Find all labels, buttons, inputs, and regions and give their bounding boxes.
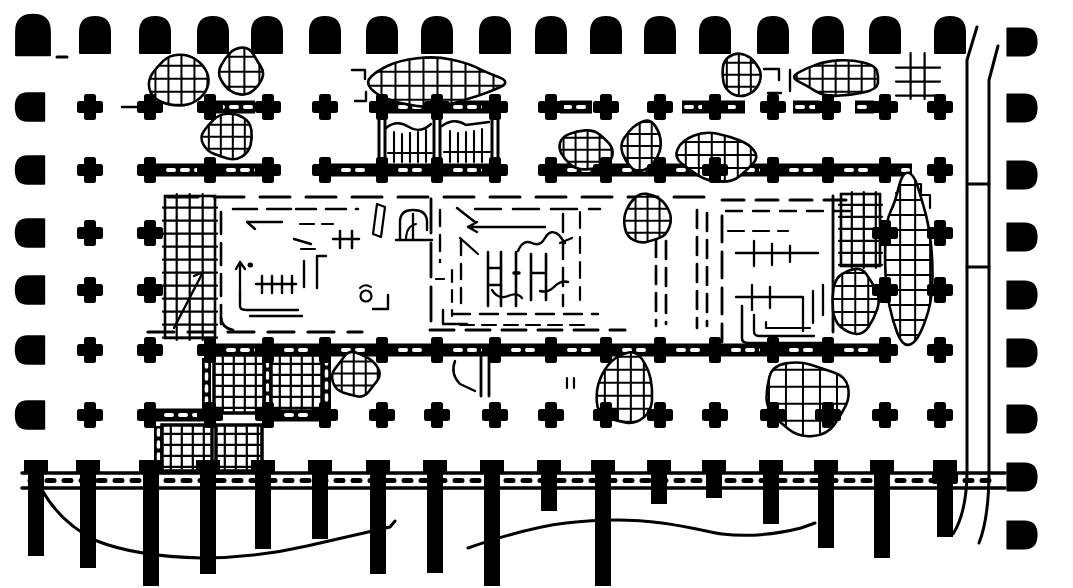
floor-plan-page: Scanned black-and-white archaeological f… <box>0 0 1073 588</box>
terrace-wall <box>22 473 1005 488</box>
enclosure-wall <box>953 27 998 543</box>
plan-svg: Scanned black-and-white archaeological f… <box>0 0 1073 588</box>
